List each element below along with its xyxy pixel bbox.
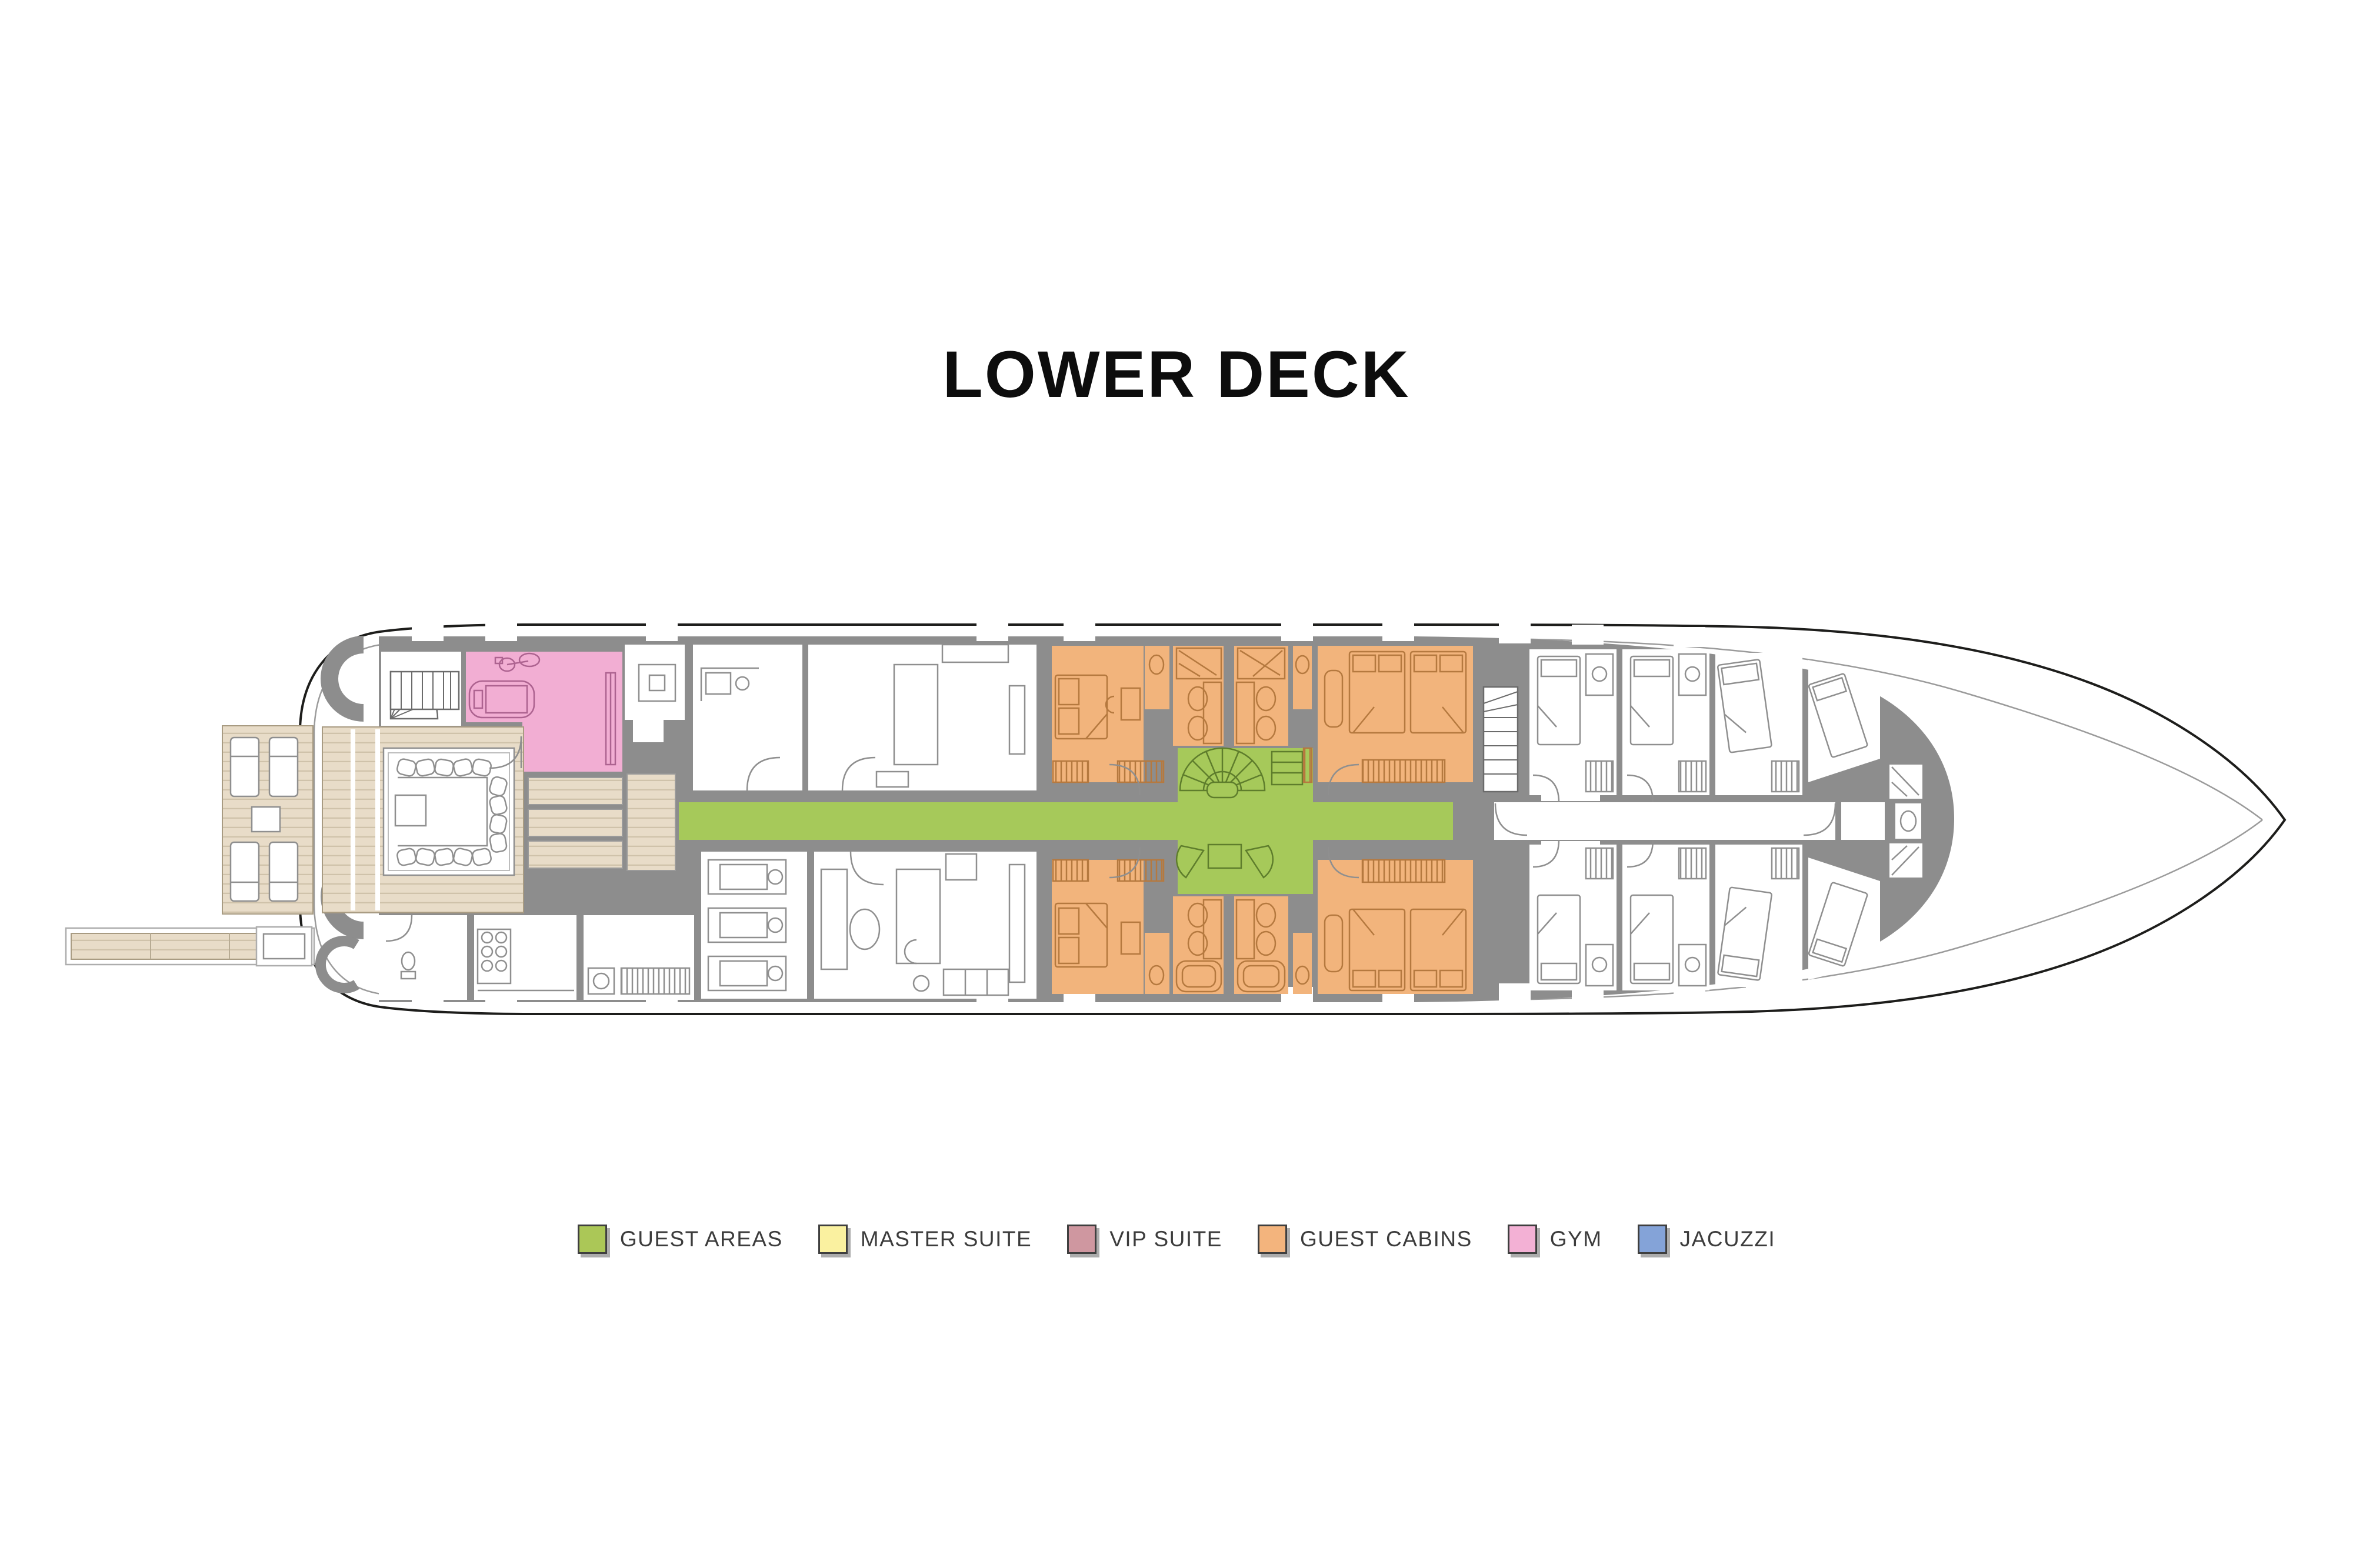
swim-platform xyxy=(222,726,313,914)
yacht-deck-plan-page: LOWER DECK xyxy=(0,0,2353,1568)
wardrobe xyxy=(1118,761,1164,782)
office-room xyxy=(693,645,802,790)
guest-cabin-aft-stbd xyxy=(1318,860,1473,994)
deck-table xyxy=(252,807,280,832)
guest-cabin-fwd-stbd xyxy=(1318,646,1473,782)
pantry-room xyxy=(584,915,694,1000)
crew-staircase xyxy=(1484,687,1518,792)
laundry-room xyxy=(379,915,467,1000)
wardrobe xyxy=(1772,761,1799,792)
legend-item-vip-suite: VIP SUITE xyxy=(1067,1225,1222,1254)
wardrobe xyxy=(1362,860,1445,882)
legend-label-jacuzzi: JACUZZI xyxy=(1680,1227,1776,1252)
crew-galley xyxy=(474,915,576,1000)
legend-swatch-vip-suite xyxy=(1067,1225,1096,1254)
coffee-table xyxy=(395,795,426,826)
legend-label-gym: GYM xyxy=(1550,1227,1602,1252)
wardrobe xyxy=(1772,848,1799,879)
aft-staircase xyxy=(381,652,461,726)
legend-label-guest-areas: GUEST AREAS xyxy=(620,1227,783,1252)
legend: GUEST AREAS MASTER SUITE VIP SUITE GUEST… xyxy=(0,1225,2353,1254)
desk xyxy=(1121,688,1140,720)
crew-cabin xyxy=(1529,649,1617,795)
legend-swatch-guest-cabins xyxy=(1258,1225,1287,1254)
passerelle xyxy=(66,927,314,966)
counter xyxy=(621,968,689,994)
legend-item-master-suite: MASTER SUITE xyxy=(818,1225,1032,1254)
legend-item-jacuzzi: JACUZZI xyxy=(1638,1225,1776,1254)
legend-label-vip-suite: VIP SUITE xyxy=(1109,1227,1222,1252)
boarding-step xyxy=(256,927,312,966)
legend-swatch-gym xyxy=(1508,1225,1537,1254)
deck-sunpads xyxy=(528,778,622,868)
crew-cabin xyxy=(1622,649,1709,795)
wardrobe xyxy=(1053,761,1088,782)
wardrobe xyxy=(1679,848,1706,879)
wardrobe xyxy=(1586,761,1613,792)
crew-corridor xyxy=(1494,802,1835,840)
legend-item-guest-areas: GUEST AREAS xyxy=(578,1225,783,1254)
deck-plan-drawing xyxy=(0,0,2353,1568)
crew-area xyxy=(1484,649,1922,990)
legend-label-master-suite: MASTER SUITE xyxy=(861,1227,1032,1252)
crew-mess xyxy=(814,852,1036,999)
wardrobe xyxy=(1053,860,1088,881)
legend-swatch-jacuzzi xyxy=(1638,1225,1667,1254)
galley-room xyxy=(808,645,1036,790)
wardrobe xyxy=(1586,848,1613,879)
legend-item-guest-cabins: GUEST CABINS xyxy=(1258,1225,1472,1254)
crew-cabin xyxy=(1715,653,1802,795)
wardrobe xyxy=(1679,761,1706,792)
legend-item-gym: GYM xyxy=(1508,1225,1602,1254)
engine-room xyxy=(701,852,807,999)
legend-label-guest-cabins: GUEST CABINS xyxy=(1300,1227,1472,1252)
wardrobe xyxy=(1362,760,1445,782)
legend-swatch-guest-areas xyxy=(578,1225,607,1254)
crew-cabin xyxy=(1715,845,1802,987)
legend-swatch-master-suite xyxy=(818,1225,848,1254)
desk xyxy=(1121,922,1140,954)
wardrobe xyxy=(1118,860,1164,881)
deck-landing xyxy=(627,774,675,870)
